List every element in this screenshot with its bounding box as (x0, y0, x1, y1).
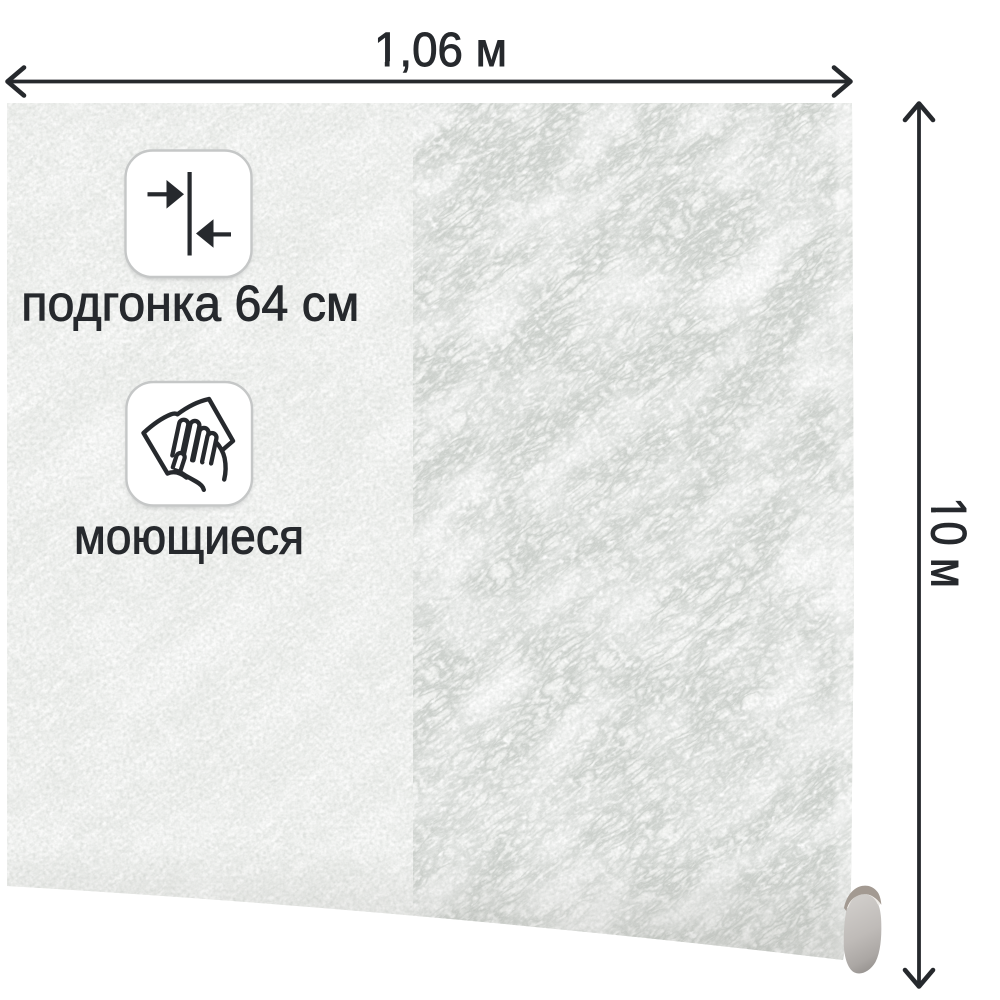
svg-text:10 м: 10 м (921, 497, 977, 588)
svg-text:1,06 м: 1,06 м (374, 24, 507, 77)
svg-text:подгонка 64 см: подгонка 64 см (21, 276, 359, 332)
svg-text:моющиеся: моющиеся (74, 509, 304, 565)
